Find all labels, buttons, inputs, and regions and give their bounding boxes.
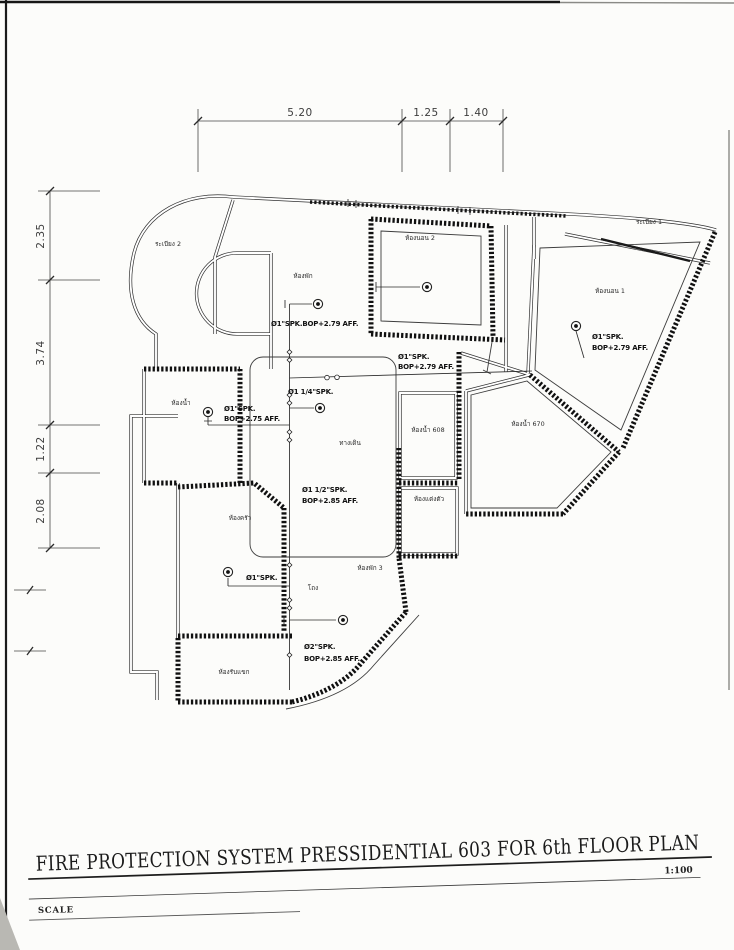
branch-living-top (285, 300, 312, 308)
spk-note-4b: BOP+2.75 AFF. (224, 415, 280, 423)
dim-top-1: 5.20 (287, 107, 312, 119)
circle-shape (206, 410, 210, 414)
scanned-drawing-page: 5.20 1.25 1.40 2.35 3.74 1.22 2.08 (0, 0, 734, 950)
pentagon-room-inner-outline (471, 381, 611, 508)
sprinkler-head-icon (338, 615, 347, 624)
thin-line-layer (250, 199, 700, 709)
room-label-guest: ห้องรับแขก (218, 668, 249, 676)
use-shape (400, 393, 456, 478)
room-label-dressing: ห้องแต่งตัว (414, 495, 445, 503)
room-label-corridor: ทางเดิน (339, 439, 361, 447)
spk-note-5b: BOP+2.85 AFF. (302, 497, 358, 505)
dim-left-4: 2.08 (35, 498, 47, 523)
circle-shape (341, 618, 345, 622)
title-underline-2 (29, 877, 701, 899)
circle-shape (226, 570, 230, 574)
dim-top-2: 1.25 (413, 107, 438, 119)
room-label-balcony2: ระเบียง 2 (155, 240, 181, 248)
use-shape (131, 196, 233, 368)
circle-shape (425, 285, 429, 289)
room-label-bath670: ห้องน้ำ 670 (511, 419, 544, 428)
spk-note-6a: Ø1"SPK. (592, 333, 623, 341)
room-label-kitchen: ห้องครัว (229, 514, 252, 522)
circle-shape (318, 406, 322, 410)
scale-ratio: 1:100 (664, 866, 693, 877)
left-stub-lines (14, 590, 46, 651)
scan-artifacts (0, 0, 734, 950)
spk-note-8b: BOP+2.85 AFF. (304, 655, 360, 663)
circle-shape (316, 302, 320, 306)
room-label-living: ห้องพัก (293, 272, 312, 280)
dim-top-3: 1.40 (463, 107, 488, 119)
bedroom1-leader (576, 331, 584, 358)
room-label-bath608: ห้องน้ำ 608 (411, 425, 444, 434)
use-shape (215, 200, 233, 334)
spk-note-6b: BOP+2.79 AFF. (592, 344, 648, 352)
spk-note-2b: BOP+2.79 AFF. (398, 363, 454, 371)
wall-layer (131, 196, 716, 700)
room-label-bedroom1: ห้องนอน 1 (595, 287, 625, 295)
dim-left-1: 2.35 (35, 223, 47, 248)
use-shape (528, 245, 534, 373)
use-shape (400, 393, 456, 478)
branch-bedroom2 (376, 282, 420, 292)
use-shape (131, 416, 178, 700)
top-dimension-extensions (198, 109, 503, 172)
title-block: FIRE PROTECTION SYSTEM PRESSIDENTIAL 603… (27, 830, 712, 899)
drawing-title: FIRE PROTECTION SYSTEM PRESSIDENTIAL 603… (35, 830, 699, 875)
corridor-leader-line (483, 342, 492, 374)
bedroom2-inner-outline (381, 231, 481, 325)
use-shape (131, 416, 178, 700)
central-room-outline (250, 357, 396, 557)
room-label-bedroom2: ห้องนอน 2 (405, 234, 435, 242)
spk-note-7: Ø1"SPK. (246, 574, 277, 582)
sprinkler-head-icon (203, 407, 212, 416)
pipe-coupling-icon (335, 375, 340, 380)
floor-plan-canvas: 5.20 1.25 1.40 2.35 3.74 1.22 2.08 (0, 0, 734, 950)
use-shape (197, 253, 272, 334)
hatched-wall-layer (144, 202, 715, 702)
sprinkler-head-icon (571, 321, 580, 330)
scale-block: SCALE (29, 901, 300, 921)
right-side-walls (399, 232, 715, 558)
spk-note-8a: Ø2"SPK. (304, 643, 335, 651)
spk-note-1: Ø1"SPK.BOP+2.79 AFF. (271, 320, 358, 328)
spk-note-4a: Ø1"SPK. (224, 405, 255, 413)
circle-shape (574, 324, 578, 328)
sprinkler-head-icon (223, 567, 232, 576)
dimension-layer: 5.20 1.25 1.40 2.35 3.74 1.22 2.08 (14, 107, 507, 655)
spk-note-5a: Ø1 1/2"SPK. (302, 486, 347, 494)
scan-edge-top-faint (560, 3, 734, 4)
use-shape (131, 196, 233, 368)
scale-label: SCALE (38, 905, 74, 916)
left-dimension-extensions (38, 191, 100, 548)
sprinkler-head-icon (422, 282, 431, 291)
room-label-bathroom: ห้องน้ำ (171, 398, 190, 407)
dim-left-2: 3.74 (35, 340, 47, 365)
spk-note-3: Ø1 1/4"SPK. (288, 388, 333, 396)
balcony-railing (601, 239, 690, 261)
use-shape (215, 200, 233, 334)
dim-left-3: 1.22 (35, 436, 47, 461)
sprinkler-head-icon (315, 403, 324, 412)
pipe-coupling-icon (325, 375, 330, 380)
scan-corner-shadow (0, 898, 20, 950)
branch-hall (284, 616, 336, 624)
spk-note-2a: Ø1"SPK. (398, 353, 429, 361)
room-label-room3: ห้องพัก 3 (357, 564, 382, 572)
sprinkler-head-icon (313, 299, 322, 308)
room-label-balcony1: ระเบียง 1 (636, 218, 662, 226)
left-stub-ticks (27, 586, 33, 655)
room-label-hall: โถง (308, 584, 318, 592)
